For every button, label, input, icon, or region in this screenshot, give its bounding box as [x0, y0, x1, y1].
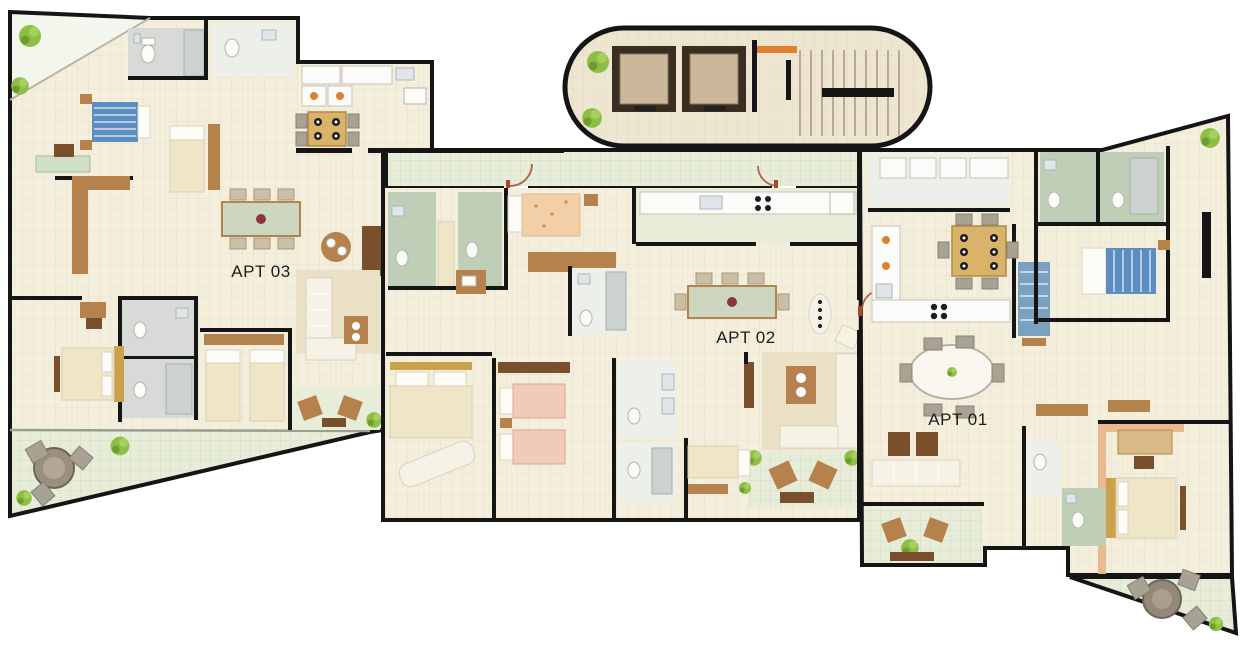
- elevator: [682, 46, 746, 112]
- toilet-icon: [1034, 454, 1046, 470]
- plant-icon: [1209, 617, 1223, 631]
- bathtub: [1130, 158, 1158, 214]
- shower: [166, 364, 192, 414]
- bed-single: [250, 363, 284, 421]
- dining-apt03: [222, 189, 300, 249]
- washer: [910, 158, 936, 178]
- plant-icon: [366, 412, 381, 427]
- toilet-icon: [628, 462, 640, 478]
- plant-icon: [582, 108, 602, 128]
- balcony-bench: [890, 552, 934, 561]
- closet: [438, 222, 454, 288]
- desk-chair: [1134, 456, 1154, 469]
- armchair: [888, 432, 910, 456]
- wardrobe: [688, 484, 728, 494]
- coffee-table: [786, 366, 816, 404]
- bed-single: [513, 430, 565, 464]
- plant-icon: [19, 25, 41, 47]
- desk: [36, 156, 90, 172]
- sofa-chaise: [780, 426, 838, 448]
- tv-panel: [744, 362, 754, 408]
- plant-icon: [11, 77, 29, 95]
- plant-icon: [947, 367, 957, 377]
- tv-console: [1036, 404, 1088, 416]
- kitchen-table: [308, 112, 346, 146]
- elevator-lobby: [565, 28, 930, 146]
- bed-bench: [1180, 486, 1186, 530]
- washer: [880, 158, 906, 178]
- bathrooms-center: [118, 296, 198, 422]
- fridge: [404, 88, 426, 104]
- plant-icon: [587, 51, 609, 73]
- desk-chair: [86, 318, 102, 329]
- plant-icon: [1200, 128, 1220, 148]
- desk: [1118, 430, 1172, 454]
- wardrobe: [498, 362, 570, 373]
- bathroom-center-apt02: [568, 266, 628, 336]
- closet: [72, 176, 88, 274]
- kitchen-sink: [396, 68, 414, 80]
- fridge: [830, 192, 854, 214]
- elevator: [612, 46, 676, 112]
- round-side-table: [321, 232, 351, 262]
- toilet-icon: [580, 310, 592, 326]
- desk-chair: [54, 144, 74, 157]
- headboard: [114, 346, 124, 402]
- nightstand: [584, 194, 598, 206]
- nightstand: [80, 140, 92, 150]
- kitchen-sink: [876, 284, 892, 298]
- sofa: [836, 354, 860, 448]
- balcony-apt02: [746, 450, 860, 506]
- shower: [606, 272, 626, 330]
- stair-handrail: [822, 88, 894, 97]
- toilet-icon: [225, 39, 239, 57]
- toilet-icon: [141, 45, 155, 63]
- headboard: [1106, 478, 1116, 538]
- floor-plan-image: APT 03: [0, 0, 1240, 652]
- toilet-icon: [466, 242, 478, 258]
- plant-icon: [111, 437, 130, 456]
- toilet-icon: [134, 382, 146, 398]
- wardrobe: [1108, 400, 1150, 412]
- toilet-icon: [628, 408, 640, 424]
- toilet-icon: [1112, 192, 1124, 208]
- bookshelf: [362, 226, 382, 276]
- plant-icon: [739, 482, 751, 494]
- bathroom-top: [128, 20, 208, 80]
- floor-plan-svg: APT 03: [0, 0, 1240, 652]
- apt-02-label: APT 02: [716, 328, 775, 347]
- plant-icon: [16, 490, 31, 505]
- bed-single: [513, 384, 565, 418]
- tv-panel: [1202, 212, 1211, 278]
- headboard: [390, 362, 472, 370]
- bedroom-bottom-apt02: [688, 446, 751, 494]
- nightstand: [1158, 240, 1170, 250]
- wardrobe: [208, 124, 220, 190]
- nightstand: [80, 94, 92, 104]
- shower: [652, 448, 672, 494]
- sofa: [306, 278, 332, 338]
- bed-double: [390, 386, 472, 438]
- laptop: [462, 276, 476, 286]
- closet: [72, 176, 130, 190]
- flower-centerpiece: [256, 214, 266, 224]
- balcony-bench: [322, 418, 346, 427]
- balcony-chairs-apt03: [292, 388, 382, 430]
- apt-01-label: APT 01: [928, 410, 987, 429]
- bathroom-top-2: [212, 24, 294, 76]
- bed-single: [688, 446, 738, 478]
- kitchen-apt02: [632, 188, 860, 246]
- toilet-icon: [396, 250, 408, 266]
- apt-03-label: APT 03: [231, 262, 290, 281]
- kitchen-table: [952, 226, 1006, 276]
- kitchen-sink: [700, 196, 722, 209]
- corridor: [383, 148, 908, 191]
- balcony-bench: [780, 492, 814, 503]
- desk: [80, 302, 106, 318]
- toilet-icon: [134, 322, 146, 338]
- bed-single: [206, 363, 240, 421]
- armchair: [916, 432, 938, 456]
- flower-centerpiece: [727, 297, 737, 307]
- apt-02-wing: APT 02: [383, 150, 863, 522]
- nightstand: [500, 418, 512, 428]
- laundry-apt01: [868, 154, 1010, 212]
- balcony-apt01: [862, 502, 984, 563]
- bed-single: [170, 140, 204, 192]
- toilet-icon: [1048, 192, 1060, 208]
- doormat: [757, 46, 797, 53]
- wardrobe: [204, 334, 284, 345]
- bed-bench: [54, 356, 60, 392]
- toilet-icon: [1072, 512, 1084, 528]
- apt-01-wing: APT 01: [857, 116, 1236, 633]
- apt-03-wing: APT 03: [10, 12, 432, 516]
